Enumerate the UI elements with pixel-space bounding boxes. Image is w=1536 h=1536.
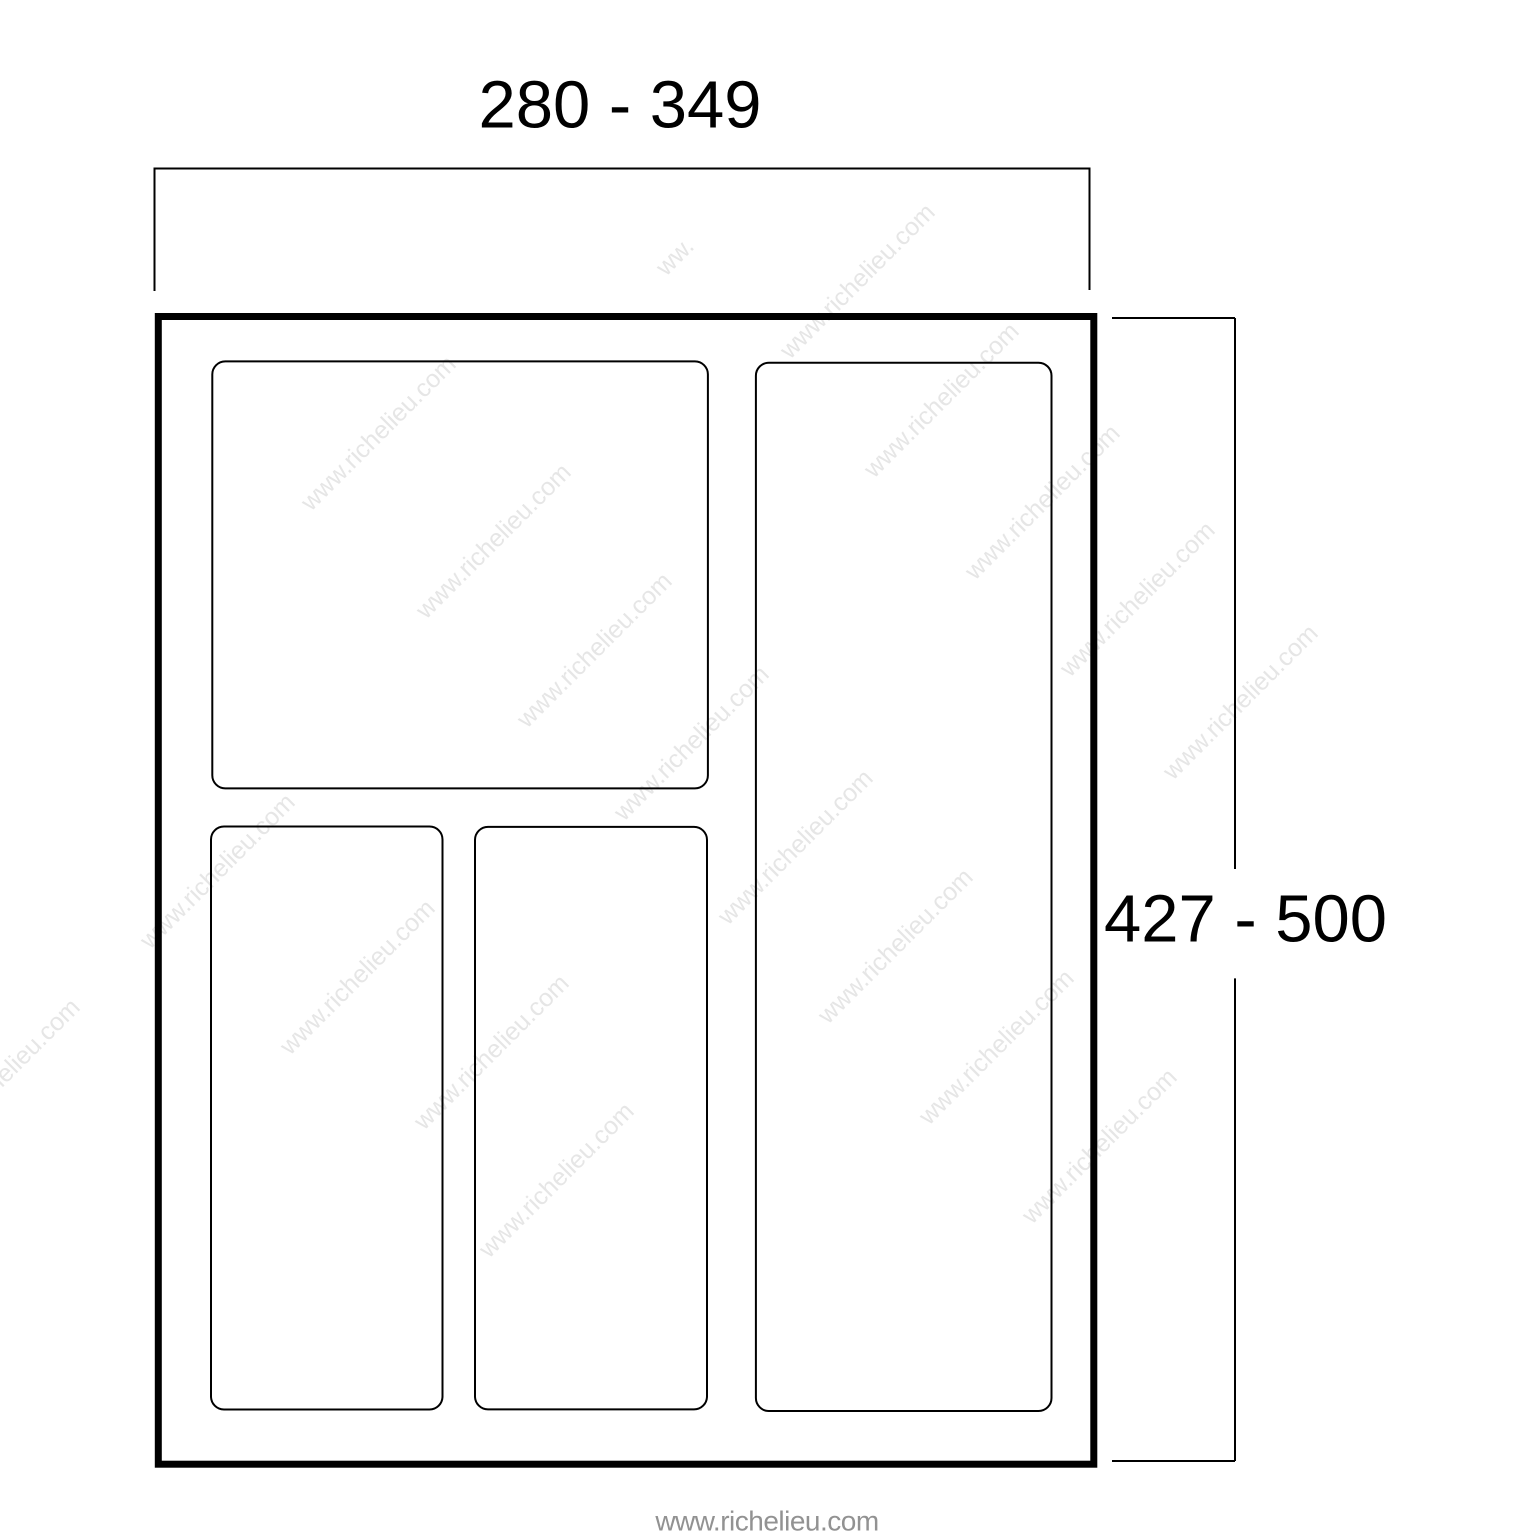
svg-text:280 - 349: 280 - 349 [478,68,761,143]
svg-text:www.richelieu.com: www.richelieu.com [654,1506,878,1536]
svg-text:427 - 500: 427 - 500 [1104,882,1387,957]
